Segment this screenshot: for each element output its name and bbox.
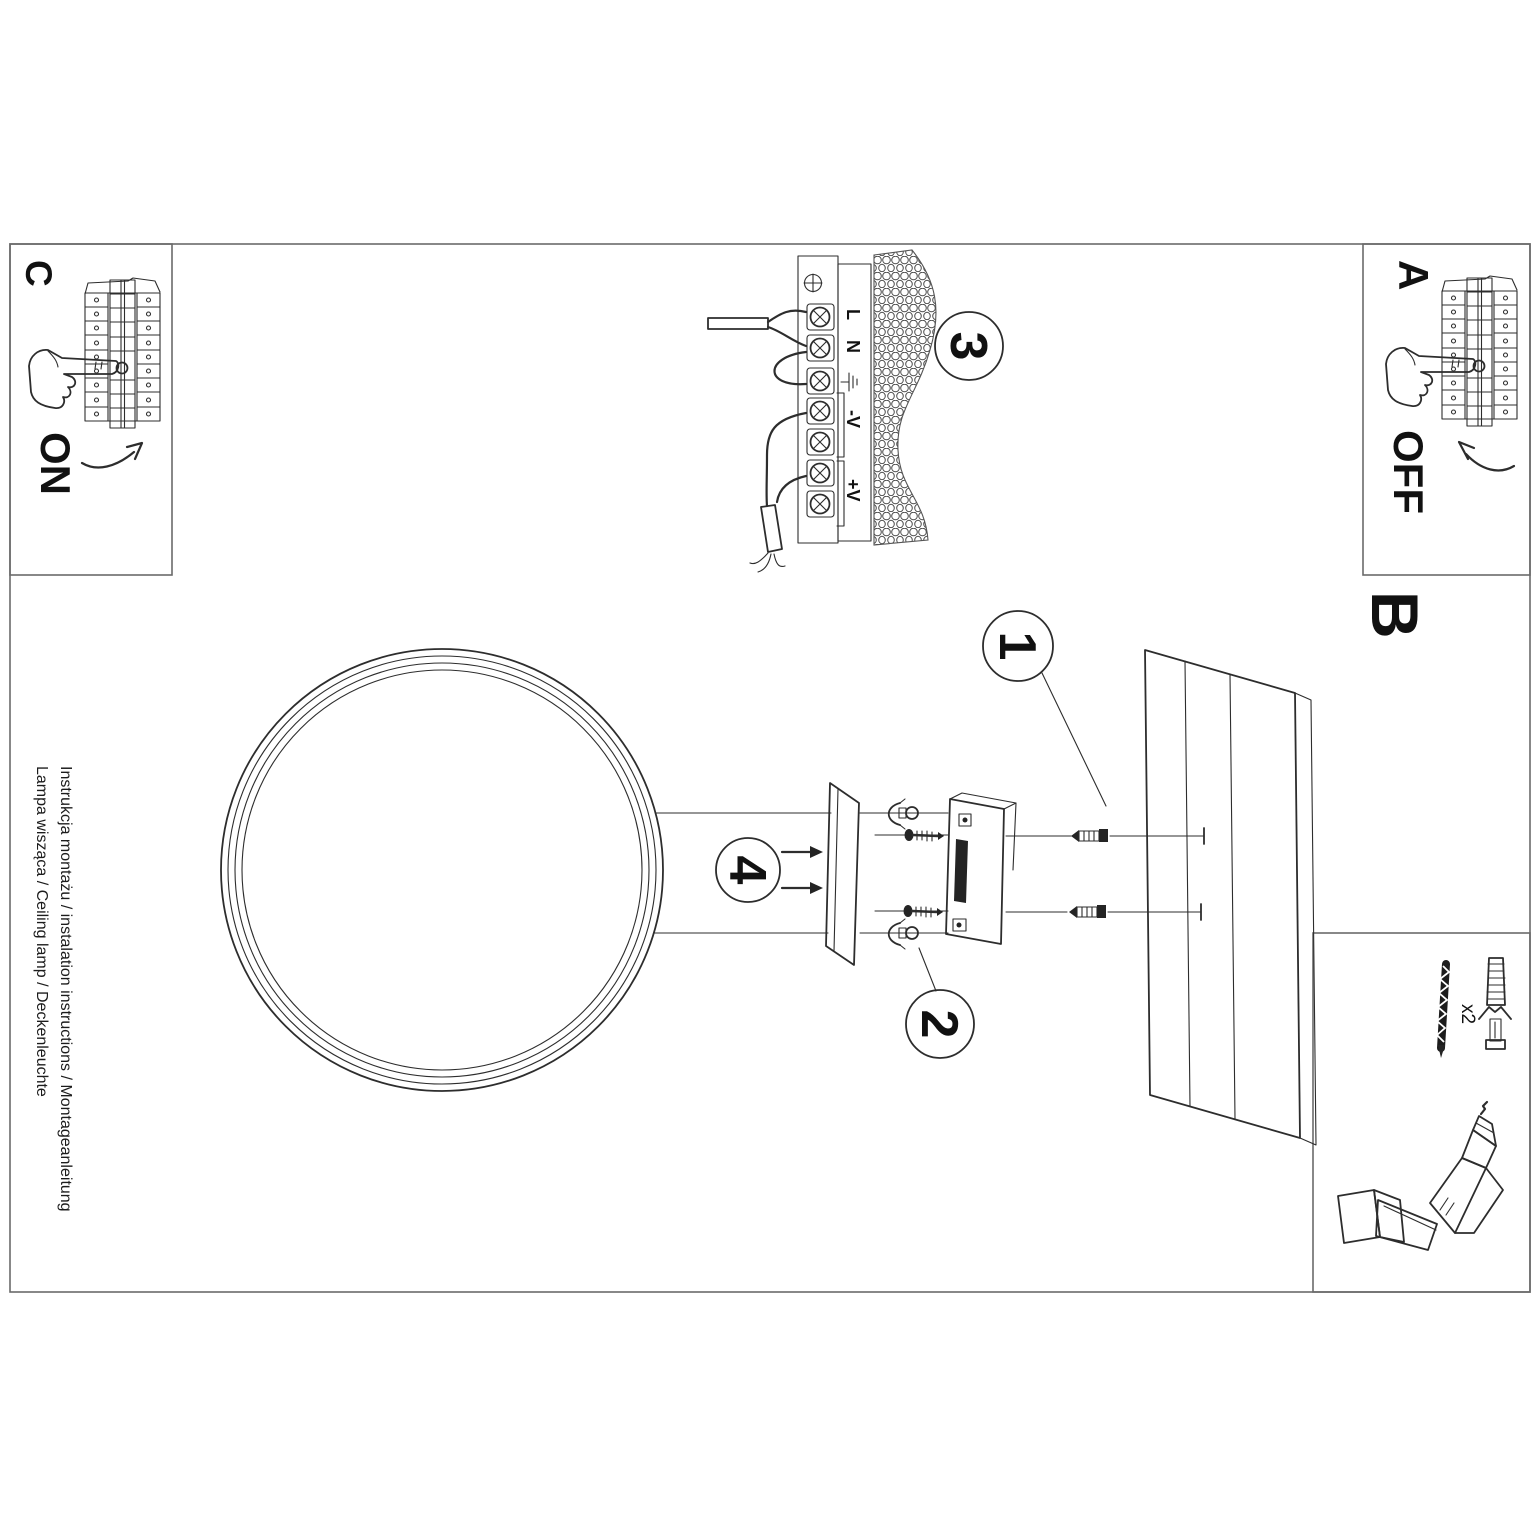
terminal-block-diagram: L N -V +V 3 xyxy=(708,250,1003,572)
step-number-3: 3 xyxy=(939,332,997,361)
breaker-panel-icon xyxy=(29,278,160,428)
on-label: ON xyxy=(32,432,79,495)
quantity-label: x2 xyxy=(1457,1004,1478,1024)
wall-anchor-row xyxy=(1006,828,1204,844)
margin-text-line-1: Instrukcja montażu / instalation instruc… xyxy=(57,766,74,1212)
step-number-1: 1 xyxy=(988,632,1046,661)
bracket-screw-icon xyxy=(875,829,948,841)
screw-terminals xyxy=(807,304,834,517)
v-plus-label: +V xyxy=(843,479,863,502)
section-c: C ON xyxy=(18,260,160,495)
live-terminal-label: L xyxy=(843,309,863,320)
drill-icon xyxy=(1338,1102,1503,1250)
leader-line xyxy=(1042,673,1106,806)
curved-arrow-off-icon xyxy=(1459,442,1514,470)
margin-text-line-2: Lampa wisząca / Ceiling lamp / Deckenleu… xyxy=(33,766,50,1097)
section-box-c xyxy=(10,244,172,575)
driver-texture xyxy=(874,250,936,545)
wall-anchor-row xyxy=(1006,904,1201,920)
curved-arrow-on-icon xyxy=(82,443,142,467)
plate-screw-hole-icon xyxy=(804,274,822,292)
wall-panel xyxy=(1145,650,1316,1145)
exploded-view: 4 xyxy=(221,611,1316,1145)
neutral-terminal-label: N xyxy=(843,340,863,353)
step-number-2: 2 xyxy=(910,1010,968,1039)
section-label-b: B xyxy=(1358,591,1432,639)
section-box-a xyxy=(1363,244,1530,575)
canopy-screw-assembly xyxy=(860,799,948,949)
section-label-a: A xyxy=(1390,260,1437,290)
plank-line xyxy=(1230,674,1235,1119)
off-label: OFF xyxy=(1385,430,1432,514)
plank-line xyxy=(1185,661,1190,1106)
screw-icon xyxy=(1437,964,1449,1058)
v-minus-label: -V xyxy=(843,410,863,428)
instruction-drawing: C ON A OFF B xyxy=(0,0,1540,1540)
step-number-4: 4 xyxy=(718,856,776,885)
lamp-ring xyxy=(221,649,663,1091)
push-arrow-icon xyxy=(782,846,823,894)
tools-box-content: x2 xyxy=(1338,958,1511,1250)
page-border xyxy=(10,244,1530,1292)
bracket-screw-icon xyxy=(875,905,948,917)
scanned-instruction-page: C ON A OFF B xyxy=(0,0,1540,1540)
canopy-plate xyxy=(826,783,859,965)
breaker-panel-icon xyxy=(1386,276,1517,426)
tools-box xyxy=(1313,933,1530,1292)
mounting-bracket xyxy=(946,793,1016,944)
earth-jumper-wire xyxy=(775,352,807,384)
mains-cable xyxy=(708,311,806,346)
leader-line xyxy=(919,948,936,991)
section-a: A OFF xyxy=(1385,260,1517,514)
wall-plug-icon xyxy=(1479,958,1511,1049)
section-label-c: C xyxy=(18,260,59,287)
earth-ground-icon xyxy=(841,373,857,391)
